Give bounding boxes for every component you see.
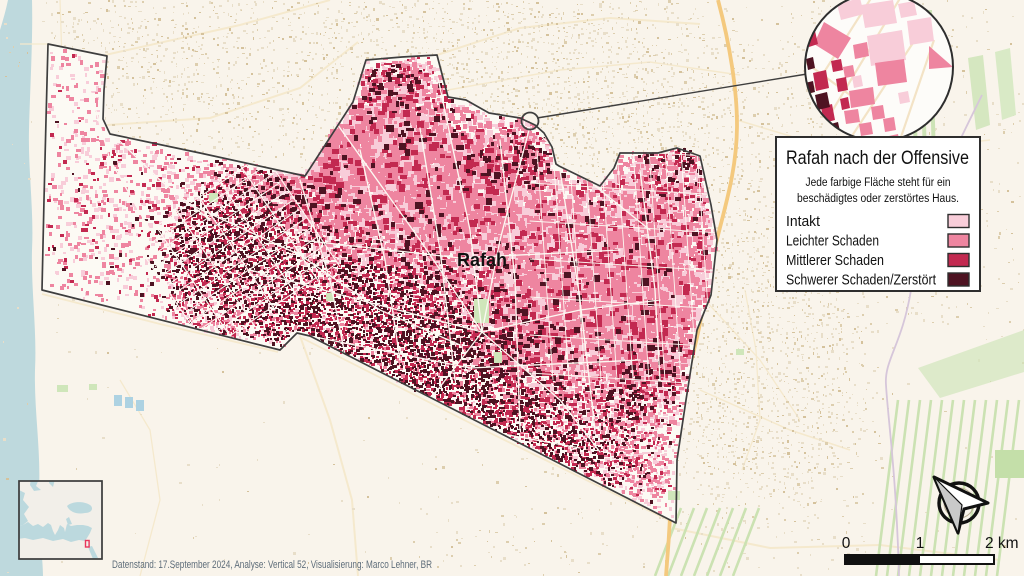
svg-text:Schwerer Schaden/Zerstört: Schwerer Schaden/Zerstört <box>786 273 936 289</box>
svg-text:1: 1 <box>916 535 925 552</box>
svg-text:Mittlerer Schaden: Mittlerer Schaden <box>786 253 884 269</box>
svg-text:2 km: 2 km <box>985 535 1019 552</box>
svg-text:0: 0 <box>842 535 851 552</box>
svg-text:Jede farbige Fläche steht für: Jede farbige Fläche steht für ein <box>806 175 951 189</box>
svg-text:Datenstand: 17.September 2024,: Datenstand: 17.September 2024, Analyse: … <box>112 559 432 571</box>
svg-text:Leichter Schaden: Leichter Schaden <box>786 234 879 250</box>
svg-text:Rafah: Rafah <box>457 250 507 270</box>
svg-text:Intakt: Intakt <box>786 214 820 230</box>
svg-text:beschädigtes oder zerstörtes H: beschädigtes oder zerstörtes Haus. <box>797 191 959 205</box>
svg-text:Rafah nach der Offensive: Rafah nach der Offensive <box>786 148 969 169</box>
